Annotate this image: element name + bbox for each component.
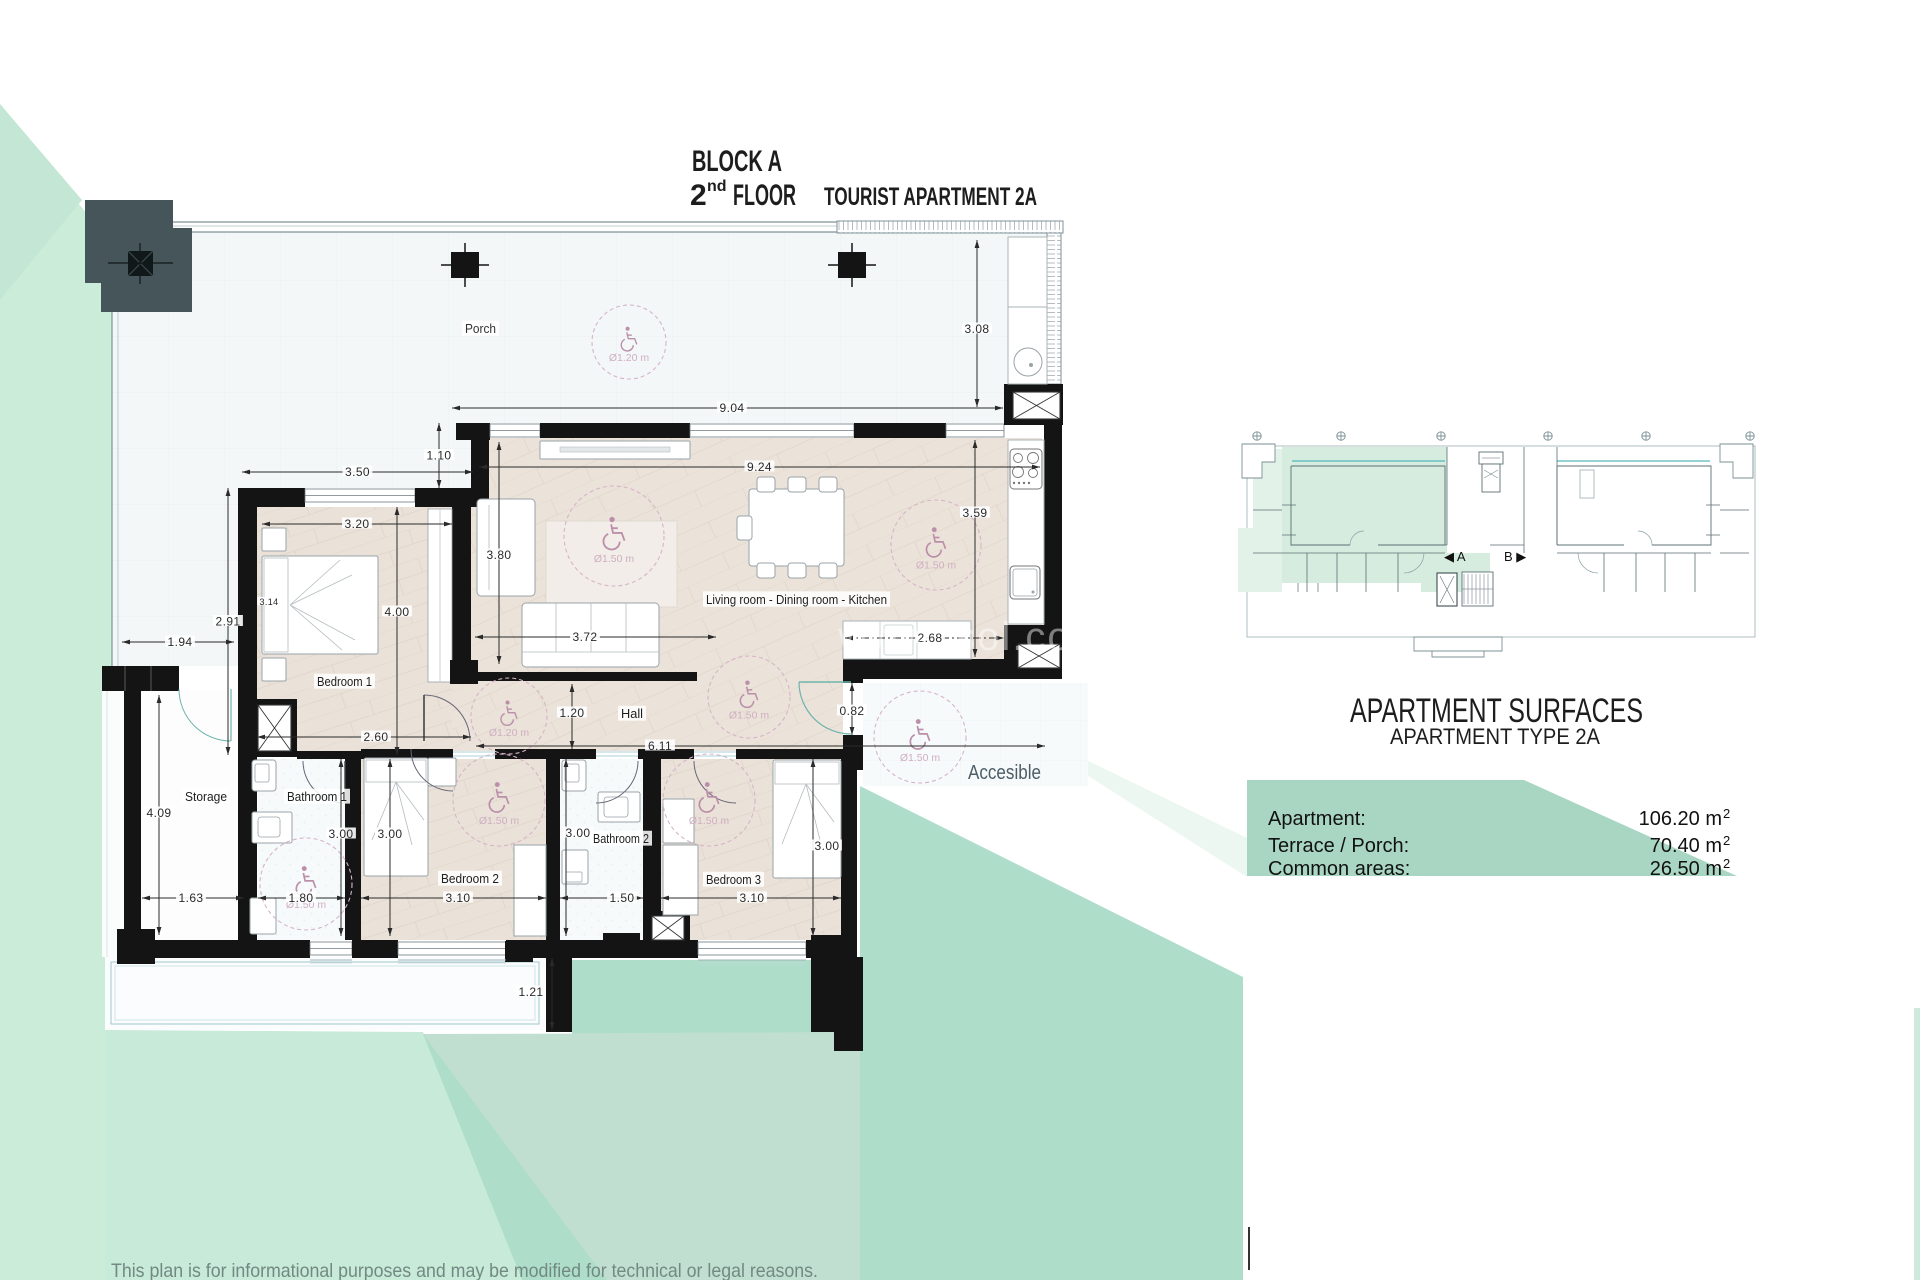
svg-text:Apartment:: Apartment:	[1268, 808, 1366, 830]
svg-text:2: 2	[1723, 856, 1730, 871]
svg-text:Ø1.50 m: Ø1.50 m	[594, 553, 635, 565]
svg-text:2.60: 2.60	[364, 730, 389, 744]
svg-text:BLOCK A: BLOCK A	[692, 145, 782, 178]
svg-text:Ø1.50 m: Ø1.50 m	[916, 559, 957, 571]
svg-text:3.80: 3.80	[487, 548, 512, 562]
svg-text:Bathroom 1: Bathroom 1	[287, 790, 347, 804]
svg-text:3.14: 3.14	[259, 597, 278, 607]
svg-text:3.00: 3.00	[815, 839, 840, 853]
svg-text:1.94: 1.94	[168, 635, 193, 649]
svg-text:3.10: 3.10	[446, 891, 471, 905]
svg-text:Bathroom 2: Bathroom 2	[593, 832, 649, 846]
svg-text:FLOOR: FLOOR	[733, 179, 796, 212]
svg-text:6.11: 6.11	[648, 739, 672, 753]
svg-text:0.82: 0.82	[840, 704, 865, 718]
svg-text:Bedroom 3: Bedroom 3	[706, 873, 761, 887]
svg-text:Bedroom 1: Bedroom 1	[317, 675, 372, 689]
svg-text:3.50: 3.50	[345, 465, 370, 479]
svg-text:Porch: Porch	[465, 322, 496, 336]
svg-text:3.59: 3.59	[963, 506, 988, 520]
svg-text:nd: nd	[707, 178, 727, 195]
svg-text:3.10: 3.10	[740, 891, 765, 905]
svg-text:4.00: 4.00	[385, 605, 410, 619]
svg-text:Bedroom 2: Bedroom 2	[441, 872, 499, 886]
svg-text:106.20 m: 106.20 m	[1639, 808, 1722, 830]
svg-text:www..sol.co: www..sol.co	[837, 615, 1071, 659]
svg-text:2: 2	[690, 179, 707, 212]
svg-text:2.91: 2.91	[216, 615, 241, 629]
svg-text:1.21: 1.21	[519, 985, 544, 999]
svg-text:3.00: 3.00	[378, 827, 403, 841]
svg-text:Ø1.20 m: Ø1.20 m	[609, 352, 650, 364]
svg-text:APARTMENT TYPE 2A: APARTMENT TYPE 2A	[1390, 724, 1600, 749]
svg-text:Hall: Hall	[621, 707, 643, 721]
svg-text:Ø1.20 m: Ø1.20 m	[489, 727, 530, 739]
svg-text:TOURIST APARTMENT 2A: TOURIST APARTMENT 2A	[824, 183, 1037, 211]
svg-text:1.20: 1.20	[560, 706, 585, 720]
svg-text:4.09: 4.09	[147, 806, 172, 820]
svg-text:3.20: 3.20	[345, 517, 370, 531]
svg-text:Ø1.50 m: Ø1.50 m	[479, 815, 520, 827]
svg-text:3.00: 3.00	[329, 827, 354, 841]
svg-text:B ▶: B ▶	[1504, 549, 1526, 564]
svg-text:2: 2	[1723, 833, 1730, 848]
svg-text:Ø1.50 m: Ø1.50 m	[900, 752, 941, 764]
svg-text:3.72: 3.72	[573, 630, 598, 644]
svg-text:2: 2	[1723, 806, 1730, 821]
svg-text:Ø1.50 m: Ø1.50 m	[729, 709, 770, 721]
svg-text:1.50: 1.50	[610, 891, 635, 905]
svg-text:Common areas:: Common areas:	[1268, 858, 1410, 880]
svg-text:Terrace / Porch:: Terrace / Porch:	[1268, 835, 1409, 857]
svg-text:3.08: 3.08	[965, 322, 990, 336]
svg-text:1.10: 1.10	[427, 449, 452, 463]
svg-text:Storage: Storage	[185, 790, 227, 804]
svg-text:This plan is for informational: This plan is for informational purposes …	[111, 1260, 818, 1280]
svg-text:26.50 m: 26.50 m	[1650, 858, 1722, 880]
svg-text:9.24: 9.24	[747, 460, 772, 474]
svg-text:Living room - Dining room - Ki: Living room - Dining room - Kitchen	[706, 592, 887, 607]
svg-text:Accesible: Accesible	[968, 762, 1041, 784]
svg-text:1.80: 1.80	[289, 891, 314, 905]
svg-text:3.00: 3.00	[566, 826, 591, 840]
svg-text:◀ A: ◀ A	[1444, 549, 1466, 564]
svg-text:70.40 m: 70.40 m	[1650, 835, 1722, 857]
svg-text:1.63: 1.63	[179, 891, 204, 905]
svg-text:9.04: 9.04	[720, 401, 745, 415]
svg-text:Ø1.50 m: Ø1.50 m	[689, 815, 730, 827]
